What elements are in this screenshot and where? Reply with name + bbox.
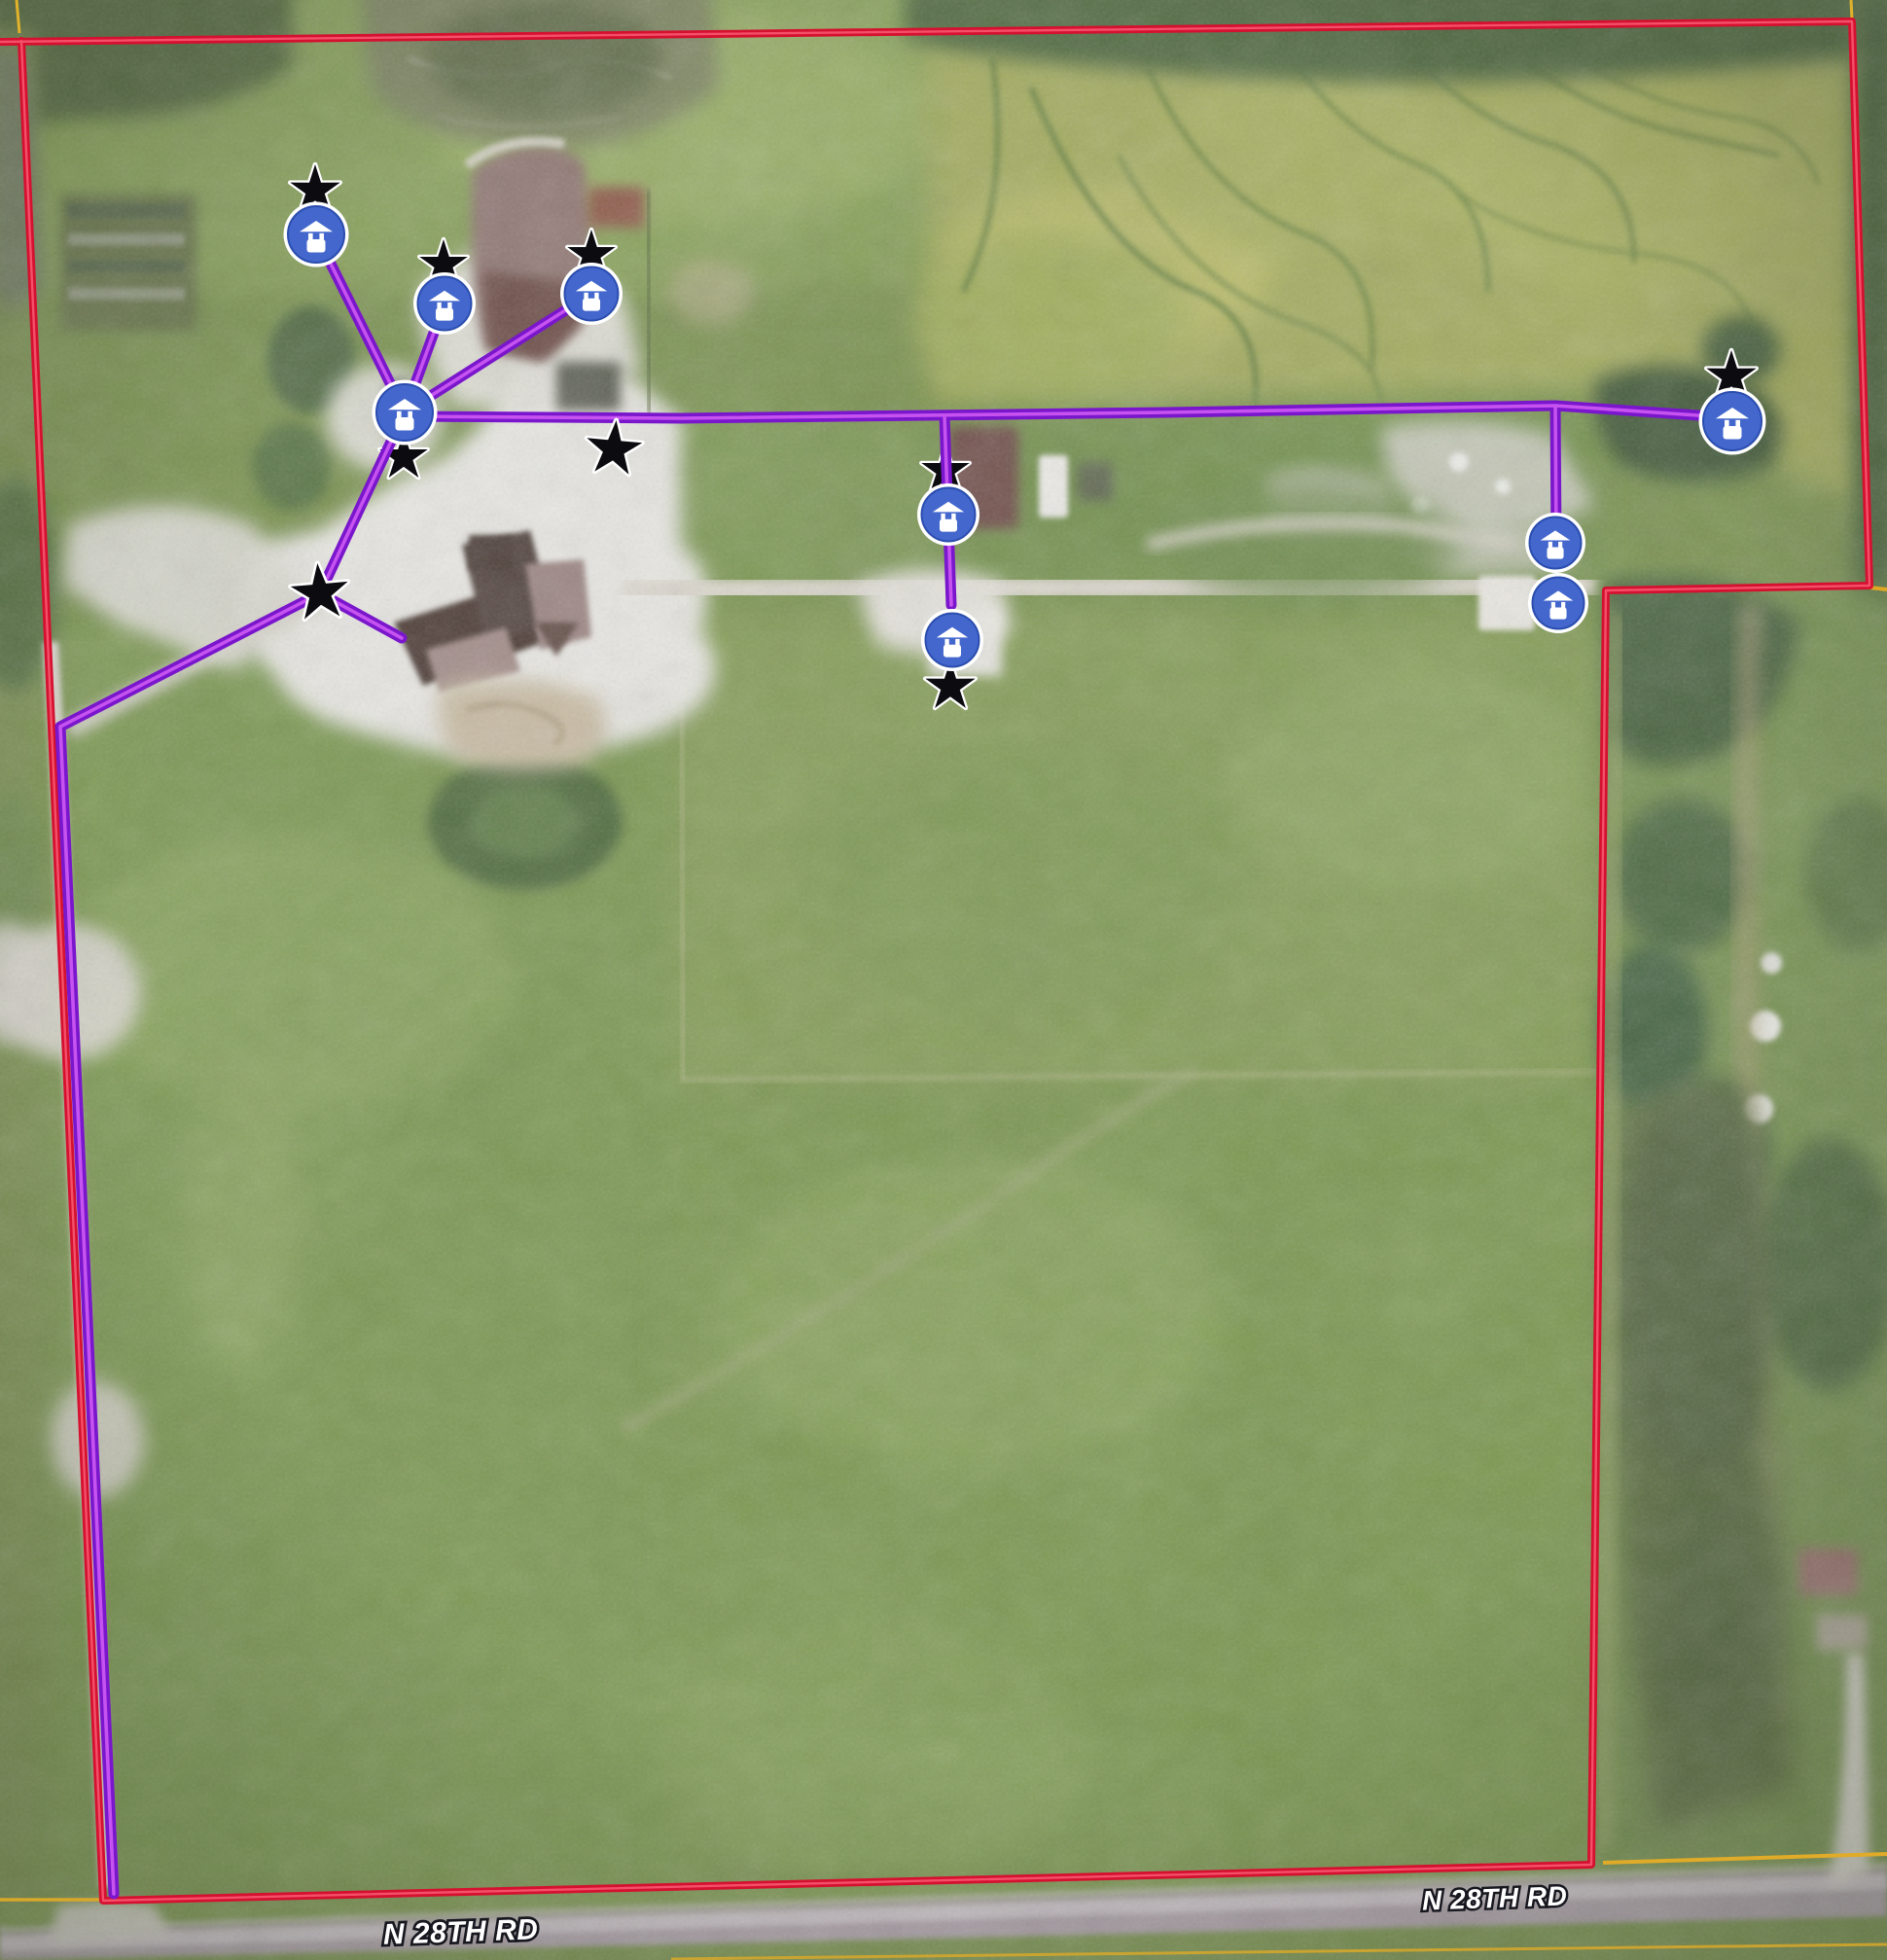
svg-text:N 28TH RD: N 28TH RD (1422, 1880, 1568, 1915)
svg-text:N 28TH RD: N 28TH RD (382, 1913, 539, 1951)
